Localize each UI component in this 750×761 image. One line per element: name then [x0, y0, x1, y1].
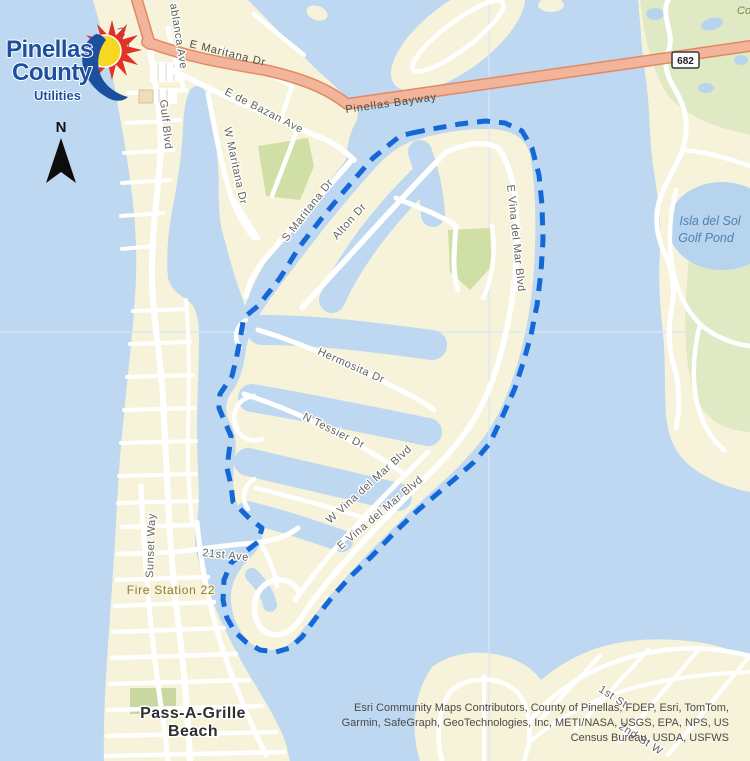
map-screenshot: ro St ablanca Ave E Maritana Dr Pinellas…	[0, 0, 750, 761]
building-footprint	[139, 90, 153, 103]
logo-text-line2: County	[12, 59, 93, 86]
place-label-golf-pond-line1: Isla del Sol	[679, 214, 741, 228]
place-label-corner-fragment: Co	[737, 5, 750, 17]
place-label-pass-a-grille-line2: Beach	[168, 723, 218, 740]
route-shield-number: 682	[677, 56, 694, 67]
place-label-golf-pond-line2: Golf Pond	[678, 231, 735, 245]
north-arrow-label: N	[56, 119, 67, 136]
attribution-line1: Esri Community Maps Contributors, County…	[354, 702, 729, 714]
place-label-pass-a-grille-line1: Pass-A-Grille	[140, 705, 246, 722]
attribution-line2: Garmin, SafeGraph, GeoTechnologies, Inc,…	[342, 717, 729, 729]
route-shield-682: 682	[672, 52, 699, 68]
place-label-fire-station: Fire Station 22	[127, 583, 216, 597]
map-canvas[interactable]: ro St ablanca Ave E Maritana Dr Pinellas…	[0, 0, 750, 761]
attribution-line3: Census Bureau, USDA, USFWS	[571, 732, 729, 744]
street-label-sunset-way: Sunset Way	[144, 513, 158, 578]
logo-text-utilities: Utilities	[34, 88, 81, 103]
